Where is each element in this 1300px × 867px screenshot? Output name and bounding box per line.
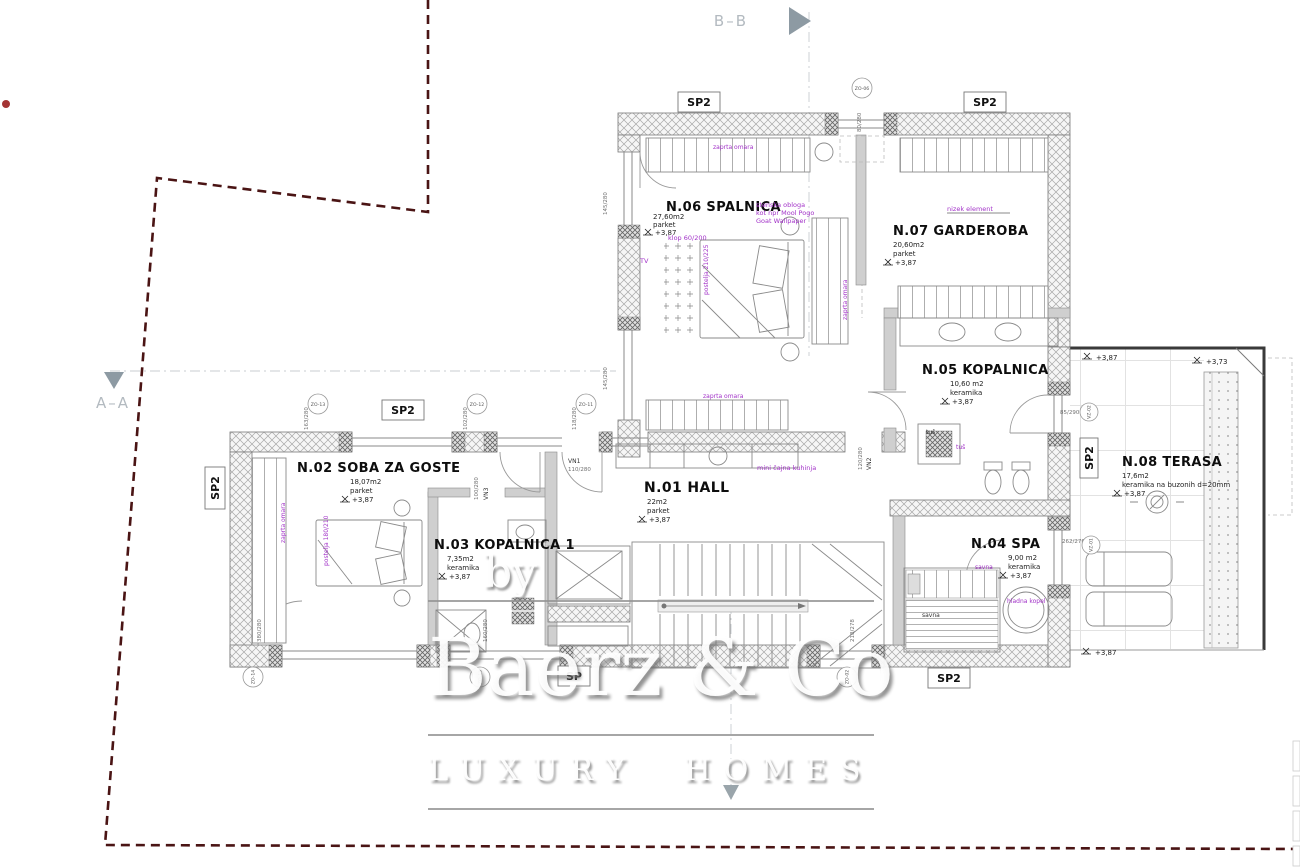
room-name: N.01 HALL	[644, 480, 729, 496]
boundary-point-dot	[2, 100, 10, 108]
opening-code: VN1	[568, 458, 581, 465]
opening-dim: 145/280	[603, 367, 609, 390]
closets	[252, 138, 1048, 643]
label-wall-finish: stenska obloga	[756, 201, 805, 209]
room-area: 27,60m2	[653, 213, 684, 221]
room-name: N.02 SOBA ZA GOSTE	[297, 461, 460, 476]
terrace	[1070, 348, 1292, 650]
opening-code: ZO-06	[855, 86, 869, 92]
opening-code: VZ-02	[1087, 405, 1093, 419]
opening-code: ZO-13	[311, 402, 325, 408]
plate-sp: SP	[566, 670, 582, 683]
room-area: 7,35m2	[447, 555, 474, 563]
room-level: +3,87	[649, 516, 670, 524]
label-closet-guest: zaprta omara	[280, 502, 287, 543]
plate-sp2: SP2	[391, 404, 415, 417]
label-sauna: savna	[975, 564, 993, 571]
toilet	[985, 470, 1001, 494]
level-value: +3,87	[1095, 649, 1116, 657]
room-label-n01: N.01 HALL 22m2 parket +3,87	[637, 480, 729, 524]
level-mark-icon	[940, 398, 950, 404]
opening-code: ZO-11	[579, 402, 593, 408]
opening-dim: 118/280	[572, 407, 578, 430]
washbasin	[516, 525, 534, 539]
room-name: N.07 GARDEROBA	[893, 224, 1028, 239]
dryer	[512, 612, 534, 624]
room-area: 20,60m2	[893, 241, 924, 249]
room-material: parket	[893, 250, 916, 258]
label-low-element: nizek element	[947, 205, 993, 213]
opening-dim: 85/290	[1060, 410, 1080, 416]
opening-code: ZO-02	[845, 670, 851, 684]
room-name: N.03 KOPALNICA 1	[434, 538, 575, 553]
label-closet-top: zaprta omara	[713, 144, 754, 151]
bathroom-n05-fixtures	[900, 318, 1058, 494]
room-name: N.05 KOPALNICA	[922, 363, 1049, 378]
label-shower: tuš	[926, 429, 935, 436]
label-closet-right: zaprta omara	[842, 279, 849, 320]
level-value: +3,73	[1206, 358, 1227, 366]
label-kitchenette: mini čajna kuhinja	[757, 464, 816, 472]
opening-code: ZO-14	[251, 670, 257, 684]
room-level: +3,87	[449, 573, 470, 581]
label-wall-finish: kot npr Mool Pogo	[756, 209, 814, 217]
opening-dim: 160/280	[483, 619, 489, 642]
room-name: N.08 TERASA	[1122, 455, 1222, 470]
opening-code: ZO-12	[470, 402, 484, 408]
elevator	[548, 546, 630, 646]
opening-dim: 145/280	[603, 192, 609, 215]
plate-sp2: SP2	[973, 96, 997, 109]
level-mark-icon	[340, 496, 350, 502]
label-sauna-bench: savna	[922, 612, 940, 619]
planter	[1204, 372, 1238, 648]
room-area: 18,07m2	[350, 478, 381, 486]
room-area: 10,60 m2	[950, 380, 984, 388]
section-label-bb: B–B	[714, 12, 748, 30]
room-area: 9,00 m2	[1008, 554, 1037, 562]
level-mark-icon	[437, 573, 447, 579]
section-arrow-icon	[723, 785, 739, 800]
room-level: +3,87	[1010, 572, 1031, 580]
opening-dim: 120/280	[858, 447, 864, 470]
plate-sp2: SP2	[937, 672, 961, 685]
plate-sp2: SP2	[687, 96, 711, 109]
sauna-stove	[908, 574, 920, 594]
clipped-edge-frames	[1293, 741, 1300, 866]
level-mark-icon	[883, 259, 893, 265]
plate-sp2: SP2	[209, 476, 222, 500]
room-name: N.04 SPA	[971, 537, 1040, 552]
label-bed-master: postelja 210/225	[703, 244, 710, 295]
floor-plan-sheet: B–B A–A	[0, 0, 1300, 867]
opening-code: VN3	[483, 487, 490, 500]
room-material: parket	[350, 487, 373, 495]
level-mark-icon	[998, 572, 1008, 578]
stool	[815, 143, 833, 161]
room-material: keramika	[1008, 563, 1040, 571]
label-tv: TV	[639, 257, 649, 265]
section-marker-bb: B–B	[714, 7, 811, 356]
section-marker-aa: A–A	[96, 371, 616, 412]
floor-plan-drawing: B–B A–A	[0, 0, 1300, 867]
bidet	[1013, 470, 1029, 494]
room-label-n07: N.07 GARDEROBA 20,60m2 parket +3,87	[883, 224, 1028, 267]
sauna	[904, 568, 1000, 652]
room-level: +3,87	[895, 259, 916, 267]
opening-code: VN2	[866, 457, 873, 470]
opening-dim: 380/280	[257, 619, 263, 642]
opening-dim: 218/278	[850, 619, 856, 642]
room-material: keramika	[447, 564, 479, 572]
room-material: parket	[647, 507, 670, 515]
room-material: keramika	[950, 389, 982, 397]
label-bench: klop 60/200	[668, 234, 707, 242]
bed-guest	[316, 500, 422, 606]
section-label-aa: A–A	[96, 394, 130, 412]
cold-bath-tub	[1003, 587, 1049, 633]
room-level: +3,87	[352, 496, 373, 504]
section-arrow-icon	[789, 7, 811, 35]
room-area: 22m2	[647, 498, 667, 506]
label-cold-bath: hladna kopel	[1007, 598, 1046, 605]
opening-dim: 163/280	[304, 407, 310, 430]
rug	[664, 242, 696, 338]
room-level: +3,87	[952, 398, 973, 406]
washer	[512, 598, 534, 610]
room-material: parket	[653, 221, 676, 229]
label-shower-purple: tuš	[956, 444, 965, 451]
label-wall-finish: Goat Wallpaper	[756, 217, 806, 225]
level-mark-icon	[643, 229, 653, 235]
section-marker-bb-bottom	[723, 604, 739, 800]
opening-dim: 100/280	[474, 477, 480, 500]
label-bed-guest: postelja 180/210	[323, 515, 330, 566]
room-material: keramika na buzonih d=20mm	[1122, 481, 1230, 489]
level-value: +3,87	[1096, 354, 1117, 362]
opening-dim: 110/280	[568, 467, 591, 473]
section-arrow-icon	[104, 372, 124, 389]
opening-dim: 102/280	[463, 407, 469, 430]
opening-code: ZO-15	[478, 670, 484, 684]
level-mark-icon	[637, 516, 647, 522]
opening-code: VZ-01	[1089, 538, 1095, 552]
plate-sp2: SP2	[1083, 446, 1096, 470]
room-level: +3,87	[1124, 490, 1145, 498]
opening-dim: 80/280	[857, 112, 863, 132]
label-closet-lower: zaprta omara	[703, 393, 744, 400]
room-area: 17,6m2	[1122, 472, 1149, 480]
